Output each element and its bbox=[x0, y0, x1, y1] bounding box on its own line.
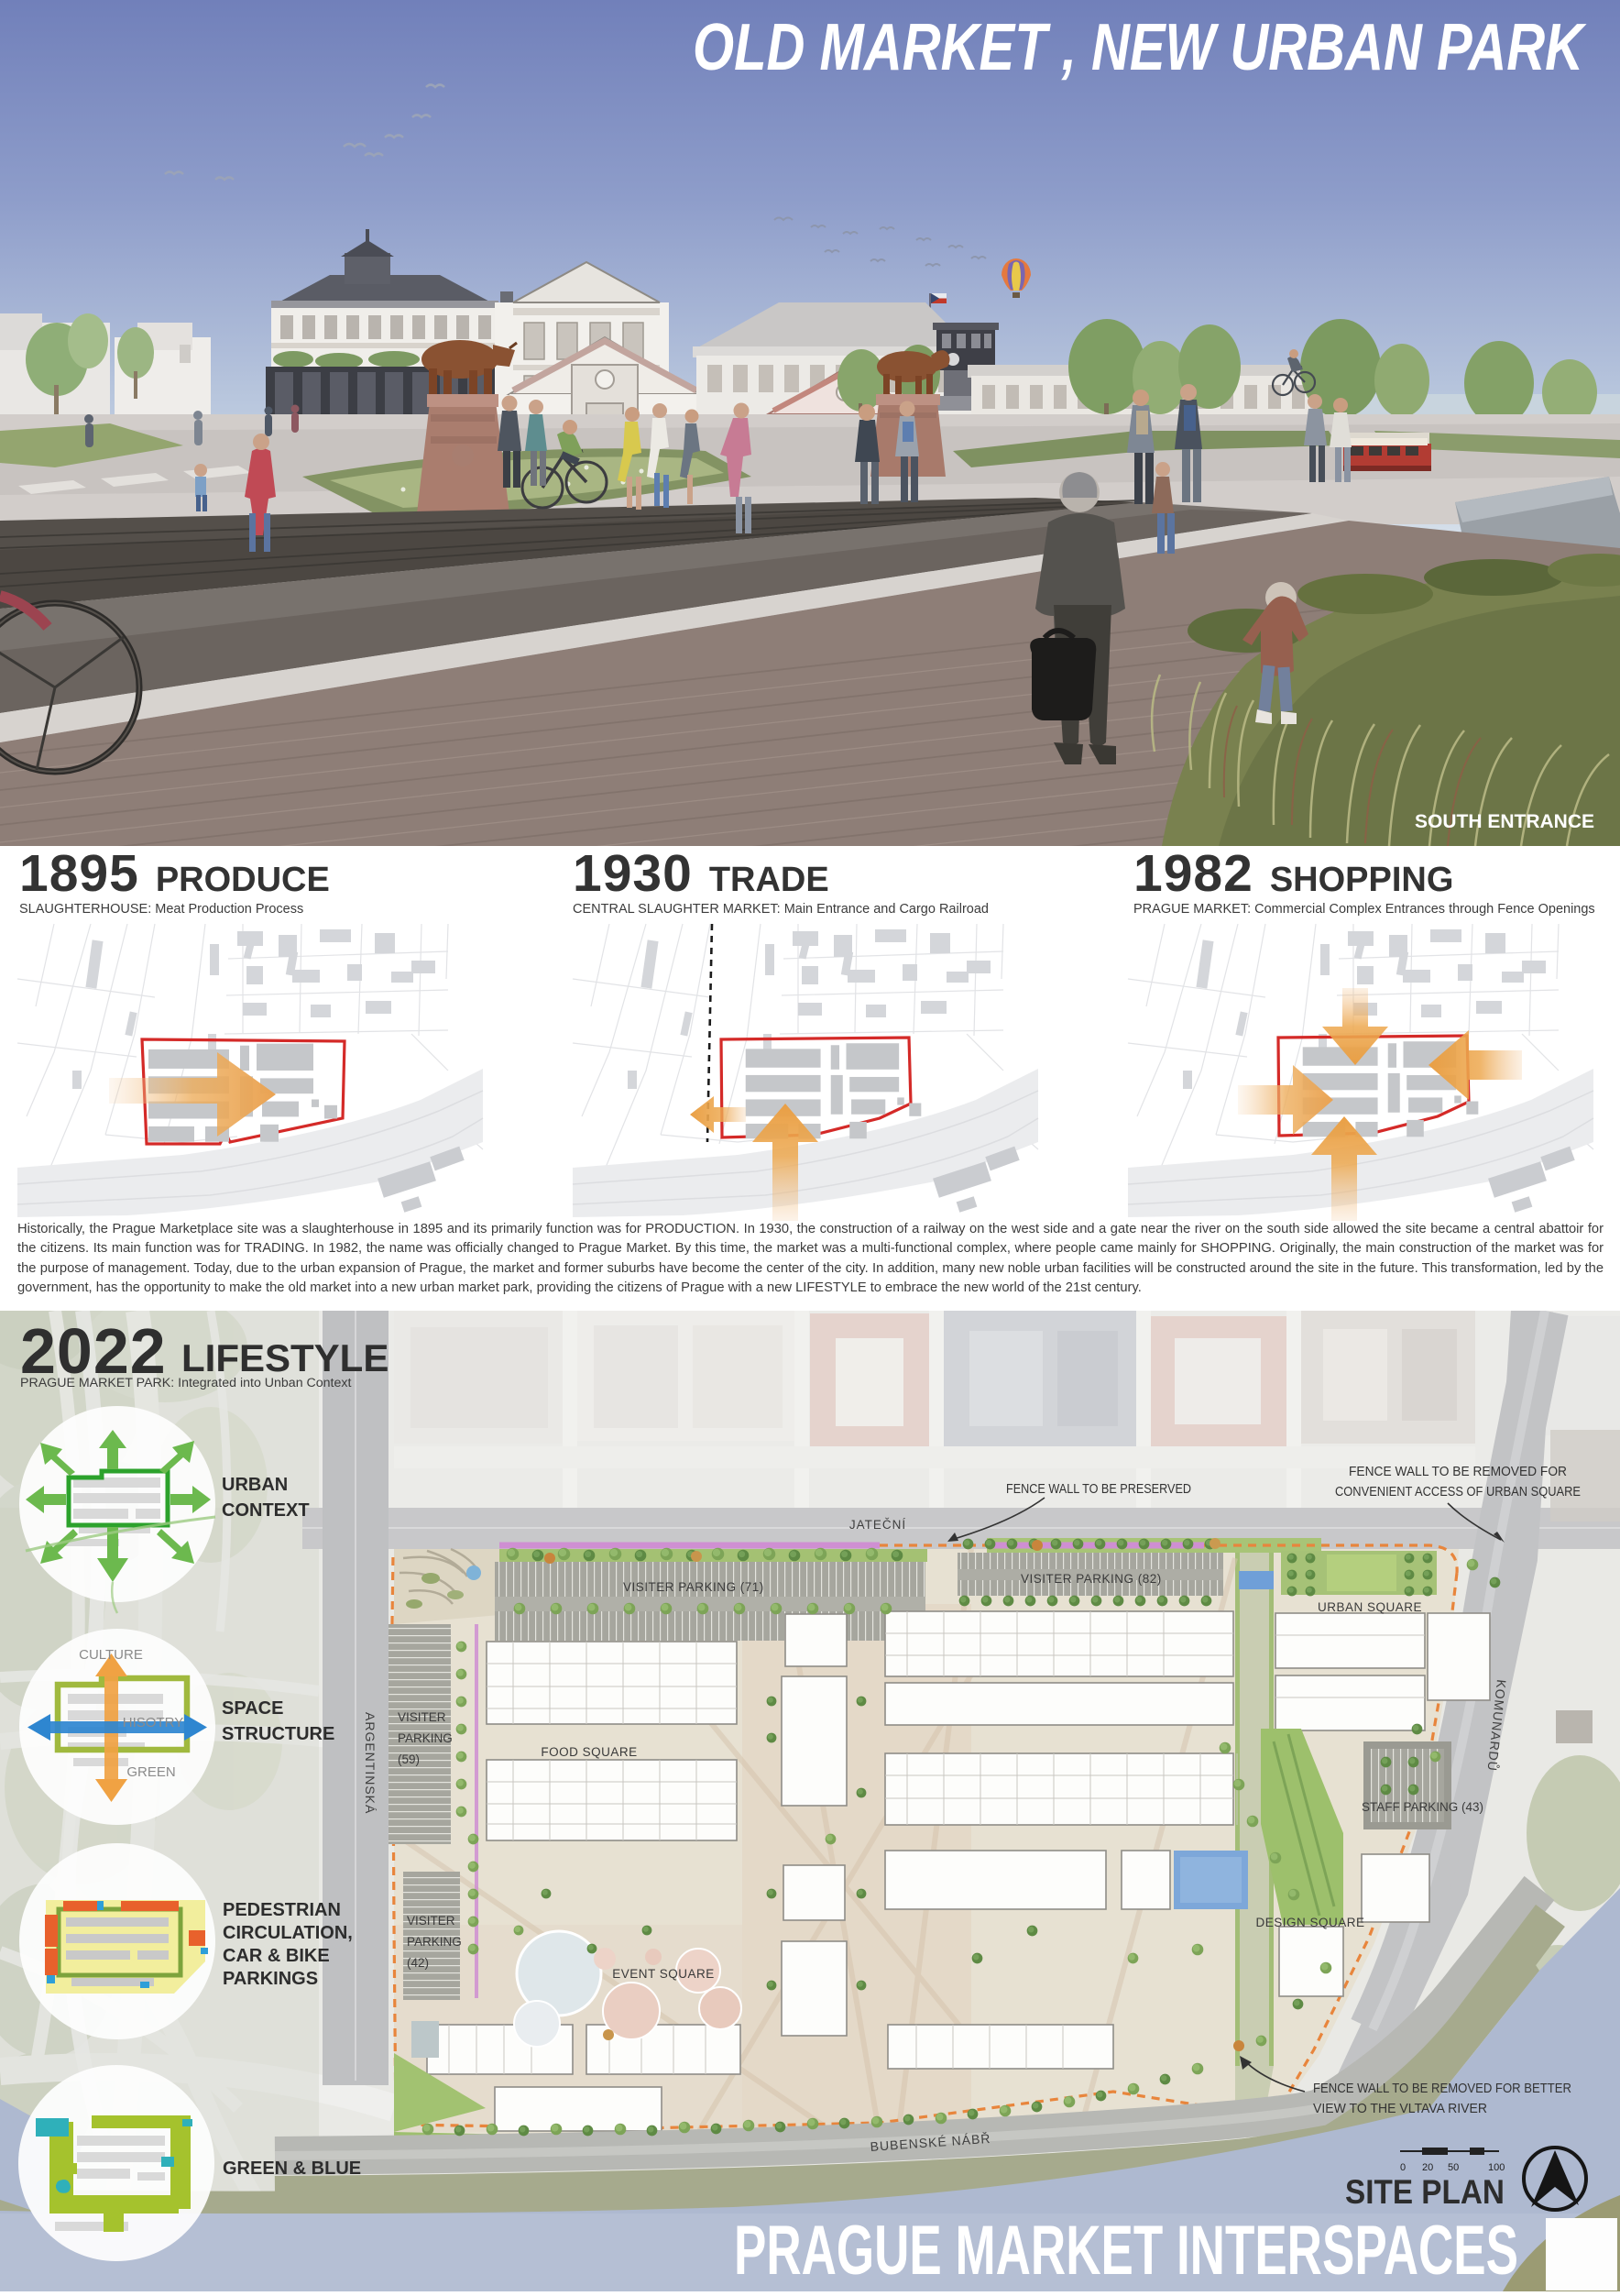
svg-text:CAR & BIKE: CAR & BIKE bbox=[223, 1946, 330, 1966]
svg-text:(42): (42) bbox=[407, 1956, 429, 1970]
svg-text:CULTURE: CULTURE bbox=[79, 1647, 143, 1663]
svg-text:LIFESTYLE: LIFESTYLE bbox=[181, 1336, 389, 1379]
svg-text:VISITER: VISITER bbox=[407, 1914, 455, 1928]
svg-text:CONVENIENT ACCESS OF URBAN SQU: CONVENIENT ACCESS OF URBAN SQUARE bbox=[1335, 1485, 1581, 1500]
svg-text:VISITER: VISITER bbox=[398, 1710, 446, 1724]
svg-text:PRAGUE MARKET INTERSPACES: PRAGUE MARKET INTERSPACES bbox=[734, 2212, 1518, 2290]
svg-text:PARKINGS: PARKINGS bbox=[223, 1969, 318, 1989]
svg-text:50: 50 bbox=[1448, 2162, 1459, 2173]
svg-text:SPACE: SPACE bbox=[222, 1698, 283, 1719]
svg-text:FOOD SQUARE: FOOD SQUARE bbox=[541, 1745, 637, 1759]
svg-text:ARGENTINSKÁ: ARGENTINSKÁ bbox=[363, 1712, 378, 1814]
svg-text:EVENT SQUARE: EVENT SQUARE bbox=[612, 1967, 715, 1981]
svg-text:CIRCULATION,: CIRCULATION, bbox=[223, 1923, 353, 1943]
svg-text:STAFF PARKING (43): STAFF PARKING (43) bbox=[1362, 1800, 1483, 1814]
svg-text:VIEW TO THE VLTAVA RIVER: VIEW TO THE VLTAVA RIVER bbox=[1313, 2102, 1487, 2116]
svg-text:FENCE WALL TO BE REMOVED FOR: FENCE WALL TO BE REMOVED FOR bbox=[1349, 1465, 1567, 1479]
svg-text:GREEN: GREEN bbox=[126, 1764, 175, 1780]
svg-text:PRAGUE MARKET PARK: Integrated: PRAGUE MARKET PARK: Integrated into Unba… bbox=[20, 1376, 351, 1390]
svg-text:CONTEXT: CONTEXT bbox=[222, 1500, 310, 1521]
svg-text:DESIGN SQUARE: DESIGN SQUARE bbox=[1255, 1916, 1364, 1929]
svg-text:PARKING: PARKING bbox=[407, 1935, 462, 1949]
svg-text:JATEČNÍ: JATEČNÍ bbox=[849, 1518, 906, 1532]
svg-text:FENCE WALL TO BE REMOVED FOR B: FENCE WALL TO BE REMOVED FOR BETTER bbox=[1313, 2082, 1571, 2096]
svg-text:20: 20 bbox=[1422, 2162, 1433, 2173]
svg-text:HISOTRY: HISOTRY bbox=[123, 1715, 183, 1730]
svg-text:0: 0 bbox=[1400, 2162, 1406, 2173]
svg-text:SOUTH ENTRANCE: SOUTH ENTRANCE bbox=[1415, 811, 1594, 832]
svg-text:(59): (59) bbox=[398, 1752, 420, 1766]
svg-text:SITE PLAN: SITE PLAN bbox=[1345, 2173, 1505, 2211]
svg-text:OLD MARKET , NEW URBAN PARK: OLD MARKET , NEW URBAN PARK bbox=[693, 11, 1587, 84]
svg-text:URBAN SQUARE: URBAN SQUARE bbox=[1318, 1600, 1422, 1614]
svg-text:PEDESTRIAN: PEDESTRIAN bbox=[223, 1900, 341, 1920]
svg-text:URBAN: URBAN bbox=[222, 1475, 288, 1495]
svg-text:100: 100 bbox=[1488, 2162, 1505, 2173]
svg-text:GREEN & BLUE: GREEN & BLUE bbox=[223, 2159, 361, 2179]
svg-text:VISITER PARKING (71): VISITER PARKING (71) bbox=[623, 1580, 764, 1594]
svg-text:VISITER PARKING (82): VISITER PARKING (82) bbox=[1021, 1572, 1162, 1586]
svg-text:PARKING: PARKING bbox=[398, 1731, 453, 1745]
svg-text:FENCE WALL TO BE PRESERVED: FENCE WALL TO BE PRESERVED bbox=[1006, 1482, 1191, 1497]
svg-text:STRUCTURE: STRUCTURE bbox=[222, 1724, 334, 1744]
